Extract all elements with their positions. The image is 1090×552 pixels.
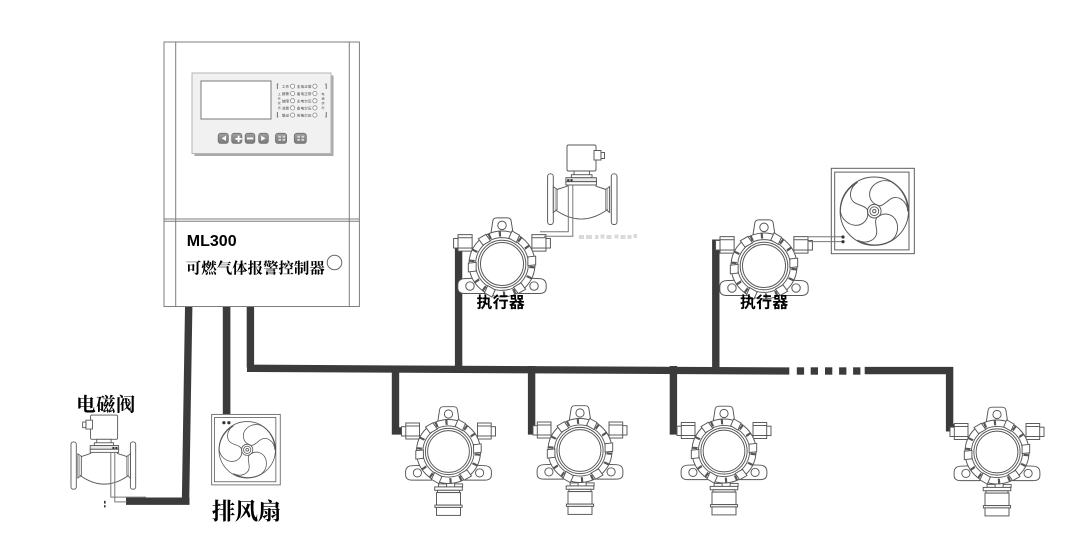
- svg-text:ML300: ML300: [187, 233, 237, 250]
